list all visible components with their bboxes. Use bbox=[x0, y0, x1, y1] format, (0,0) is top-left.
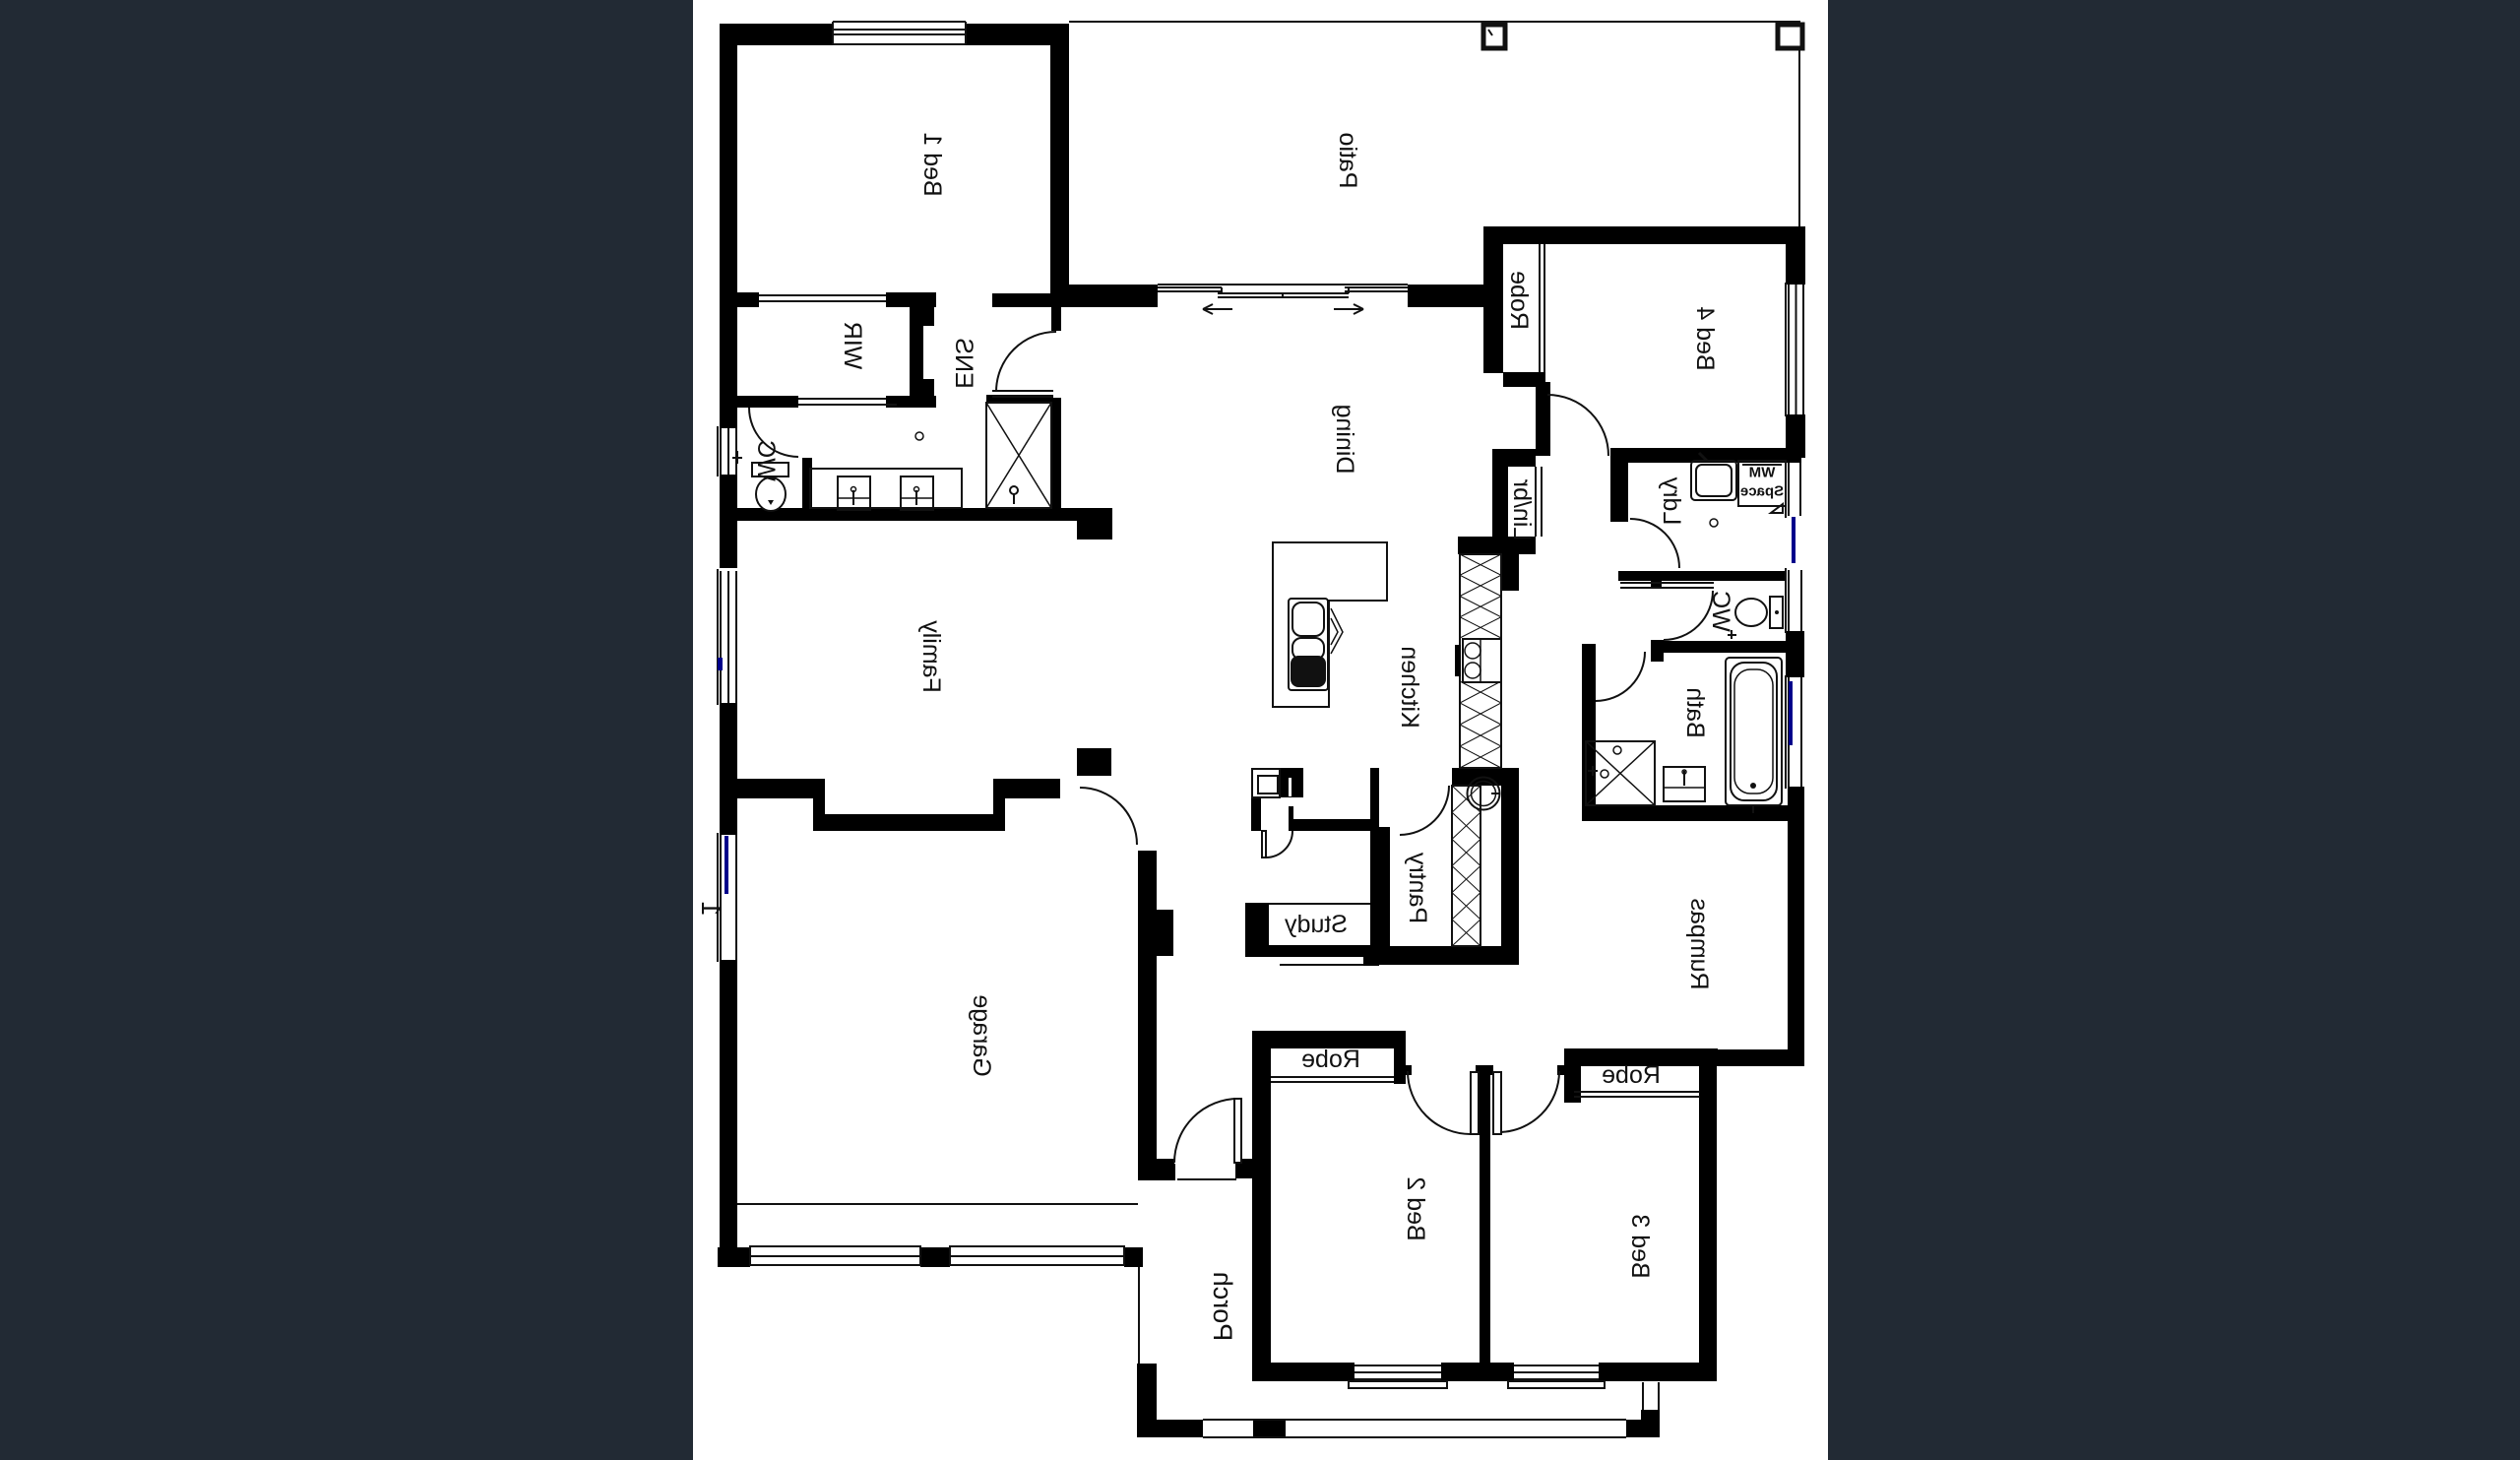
svg-text:Garage: Garage bbox=[968, 994, 995, 1076]
svg-text:ENS: ENS bbox=[950, 338, 977, 388]
svg-text:WC: WC bbox=[752, 440, 780, 481]
svg-text:Space: Space bbox=[1740, 483, 1784, 500]
svg-text:Patio: Patio bbox=[1334, 133, 1361, 189]
svg-text:Bed 2: Bed 2 bbox=[1402, 1176, 1429, 1240]
svg-text:Porch: Porch bbox=[1208, 1272, 1237, 1342]
svg-text:WIR: WIR bbox=[839, 322, 866, 370]
svg-text:Bed 4: Bed 4 bbox=[1691, 306, 1719, 370]
svg-text:Bed 3: Bed 3 bbox=[1626, 1214, 1654, 1278]
svg-text:Bath: Bath bbox=[1681, 687, 1709, 737]
svg-text:Dining: Dining bbox=[1331, 405, 1358, 475]
svg-text:WM: WM bbox=[1749, 465, 1776, 481]
svg-text:Ldry: Ldry bbox=[1658, 476, 1685, 525]
svg-text:Rumpas: Rumpas bbox=[1685, 898, 1713, 989]
svg-text:Bed 1: Bed 1 bbox=[918, 132, 946, 196]
svg-text:1: 1 bbox=[696, 901, 725, 916]
svg-text:Study: Study bbox=[1285, 911, 1348, 938]
svg-text:Robe: Robe bbox=[1301, 1046, 1360, 1073]
svg-text:Lin/br: Lin/br bbox=[1508, 479, 1536, 541]
svg-text:Kitchen: Kitchen bbox=[1396, 646, 1423, 728]
svg-text:Family: Family bbox=[917, 620, 945, 693]
svg-text:Robe: Robe bbox=[1602, 1061, 1661, 1089]
svg-text:Robe: Robe bbox=[1505, 271, 1533, 330]
svg-text:Pantry: Pantry bbox=[1404, 852, 1431, 923]
svg-text:WC: WC bbox=[1707, 591, 1734, 632]
